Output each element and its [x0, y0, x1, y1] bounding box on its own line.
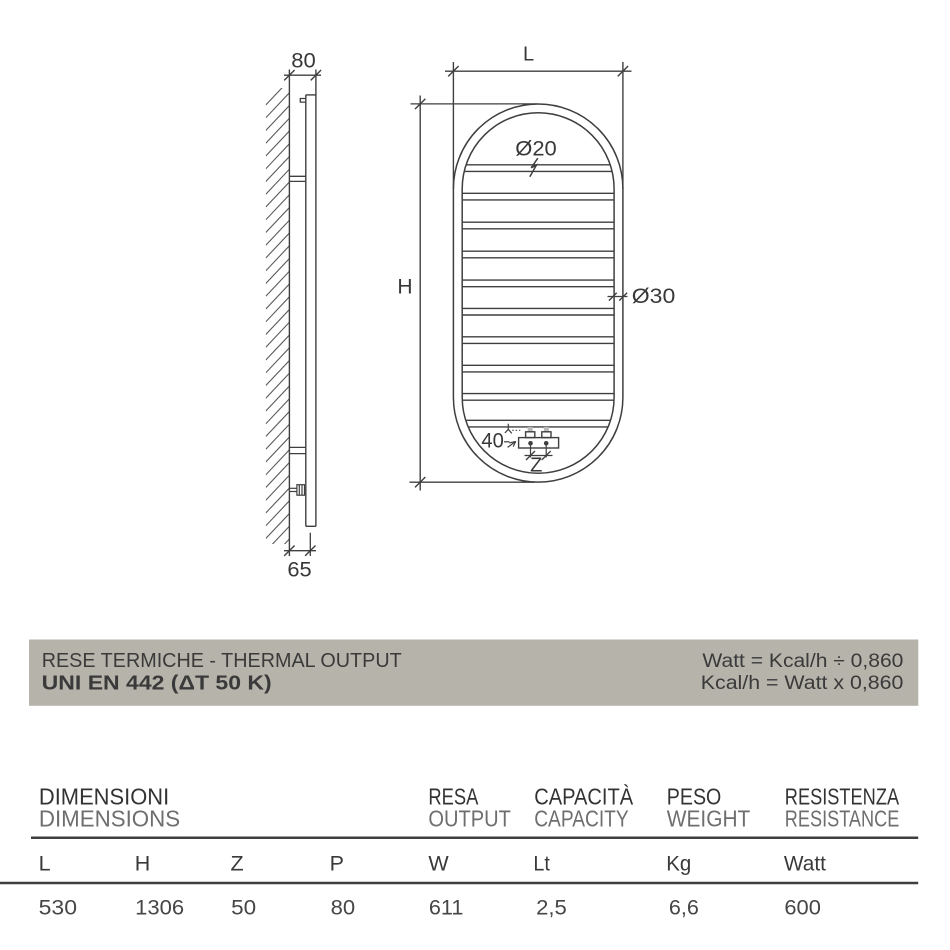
svg-text:L: L — [523, 43, 534, 65]
svg-text:Kcal/h = Watt x 0,860: Kcal/h = Watt x 0,860 — [701, 673, 904, 694]
svg-text:530: 530 — [39, 896, 77, 920]
svg-text:1306: 1306 — [135, 896, 184, 920]
svg-text:Ø30: Ø30 — [632, 285, 676, 308]
svg-text:611: 611 — [429, 896, 464, 920]
svg-text:RESISTANCE: RESISTANCE — [785, 805, 900, 831]
svg-text:Ø20: Ø20 — [515, 137, 557, 160]
svg-text:Watt = Kcal/h ÷ 0,860: Watt = Kcal/h ÷ 0,860 — [702, 651, 903, 672]
svg-text:2,5: 2,5 — [536, 896, 567, 920]
svg-text:WEIGHT: WEIGHT — [667, 805, 751, 831]
svg-text:P: P — [330, 851, 344, 875]
svg-text:65: 65 — [287, 559, 311, 582]
svg-text:Kg: Kg — [666, 851, 691, 875]
svg-text:OUTPUT: OUTPUT — [428, 805, 511, 831]
svg-text:CAPACITY: CAPACITY — [534, 805, 629, 831]
svg-text:H: H — [135, 851, 151, 875]
svg-text:600: 600 — [784, 896, 821, 920]
svg-text:Z: Z — [231, 851, 244, 875]
svg-text:40: 40 — [481, 429, 503, 452]
svg-text:80: 80 — [331, 896, 356, 920]
svg-text:Watt: Watt — [784, 851, 826, 875]
svg-text:DIMENSIONS: DIMENSIONS — [39, 805, 180, 831]
svg-text:50: 50 — [231, 896, 256, 920]
svg-text:L: L — [39, 851, 51, 875]
svg-text:RESE TERMICHE - THERMAL OUTPUT: RESE TERMICHE - THERMAL OUTPUT — [42, 649, 402, 672]
svg-text:UNI EN 442 (ΔT 50 K): UNI EN 442 (ΔT 50 K) — [42, 672, 272, 695]
svg-text:80: 80 — [291, 49, 316, 72]
svg-text:W: W — [428, 851, 449, 875]
svg-text:H: H — [397, 276, 412, 299]
svg-text:Z: Z — [530, 455, 542, 477]
svg-text:Lt: Lt — [533, 851, 550, 875]
svg-text:6,6: 6,6 — [669, 896, 699, 920]
